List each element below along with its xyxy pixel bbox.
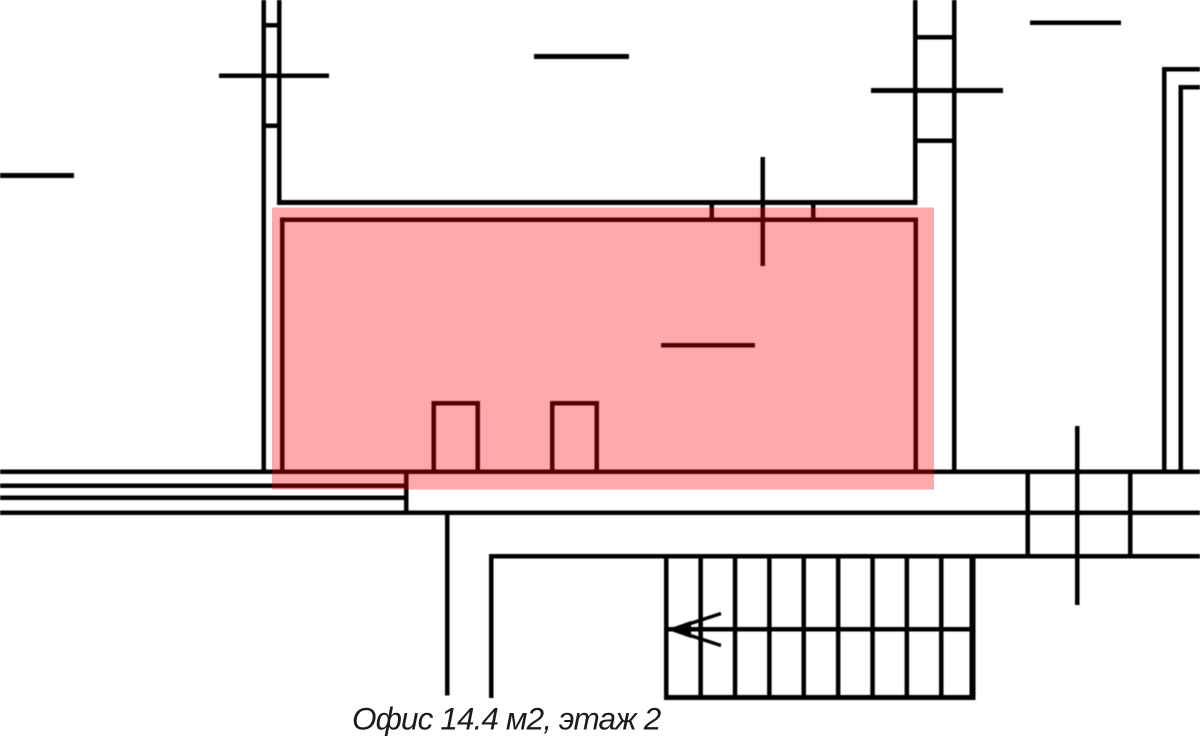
svg-text:Офис 14.4 м2, этаж 2: Офис 14.4 м2, этаж 2	[352, 700, 662, 736]
